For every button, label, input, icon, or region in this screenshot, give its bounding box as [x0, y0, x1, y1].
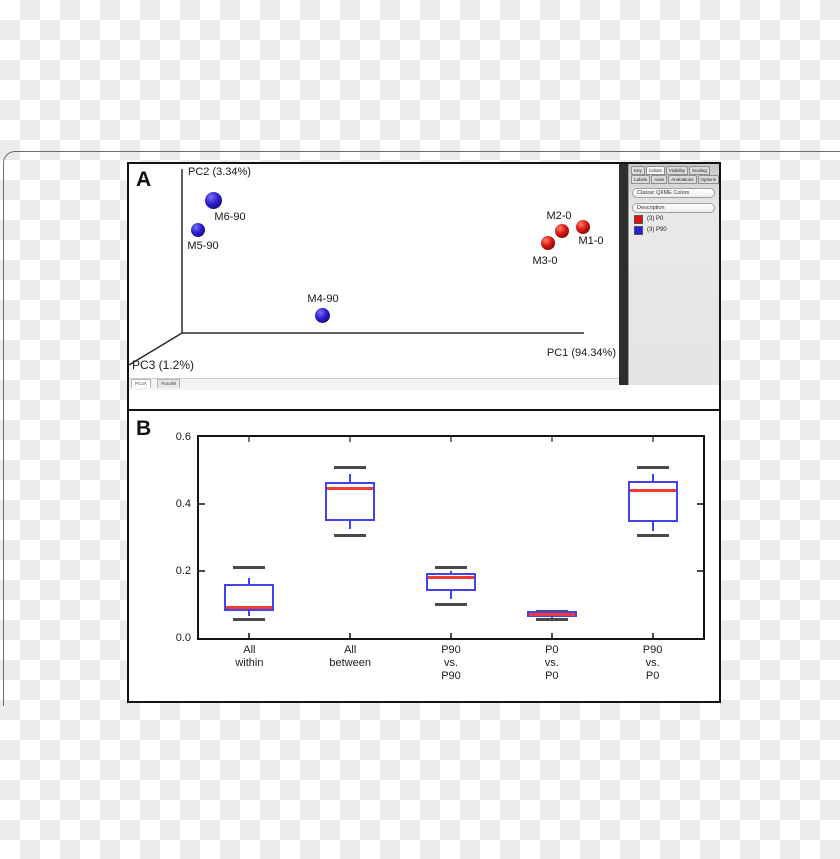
box-cap-high	[233, 566, 265, 569]
emperor-sidebar: KeyColorsVisibilityScaling LabelsAxesAni…	[628, 164, 719, 385]
tab-pcoa[interactable]: PCoA	[131, 379, 151, 388]
pcoa-point-m6-90	[205, 192, 222, 209]
x-tick-mark	[551, 633, 553, 638]
box-whisker-low	[248, 611, 250, 616]
x-tick-mark	[551, 437, 553, 442]
x-tick-mark	[349, 437, 351, 442]
sidebar-tab-axes[interactable]: Axes	[651, 175, 667, 184]
y-tick-label: 0.2	[157, 565, 191, 577]
x-category-label: Allwithin	[204, 644, 294, 670]
sidebar-tab-options[interactable]: Options	[698, 175, 720, 184]
x-category-label: P90vs.P0	[608, 644, 698, 683]
sidebar-tab-labels[interactable]: Labels	[631, 175, 650, 184]
box-cap-low	[435, 603, 467, 606]
figure-container: A PC2 (3.34%) PC1 (94.34%) PC3 (1.2%) M6…	[127, 162, 721, 703]
pcoa-point-m1-0	[576, 220, 590, 234]
box-cap-low	[637, 534, 669, 537]
pcoa-point-label-m5-90: M5-90	[187, 240, 218, 252]
legend-label: (3) P90	[647, 227, 667, 233]
box-median	[226, 606, 272, 609]
y-tick-mark	[199, 503, 205, 505]
x-tick-mark	[248, 437, 250, 442]
box-whisker-high	[349, 474, 351, 482]
panel-b-boxplot: B 0.00.20.40.6 AllwithinAllbetweenP90vs.…	[129, 411, 719, 701]
box-median	[327, 487, 373, 490]
pcoa-point-m3-0	[541, 236, 555, 250]
pcoa-point-label-m6-90: M6-90	[214, 211, 245, 223]
transparency-checkerboard: A PC2 (3.34%) PC1 (94.34%) PC3 (1.2%) M6…	[0, 0, 840, 859]
legend-color-swatch[interactable]	[634, 226, 643, 235]
box-cap-low	[334, 534, 366, 537]
sidebar-tab-animations[interactable]: Animations	[668, 175, 696, 184]
pc3-axis-label: PC3 (1.2%)	[132, 358, 194, 372]
box-whisker-high	[652, 474, 654, 481]
y-tick-label: 0.6	[157, 431, 191, 443]
description-category-button[interactable]: Description	[632, 203, 715, 213]
pcoa-point-label-m2-0: M2-0	[546, 210, 571, 222]
pcoa-point-m4-90	[315, 308, 330, 323]
x-tick-mark	[450, 633, 452, 638]
x-category-label: P0vs.P0	[507, 644, 597, 683]
box-whisker-low	[450, 591, 452, 599]
pc2-axis-label: PC2 (3.34%)	[188, 166, 251, 178]
pc1-axis-label: PC1 (94.34%)	[547, 347, 616, 359]
pcoa-point-m2-0	[555, 224, 569, 238]
box-whisker-high	[248, 578, 250, 585]
x-category-label: P90vs.P90	[406, 644, 496, 683]
sidebar-tab-key[interactable]: Key	[631, 166, 645, 175]
y-tick-mark	[199, 570, 205, 572]
y-tick-label: 0.4	[157, 498, 191, 510]
box-iqr	[628, 481, 678, 523]
box-median	[428, 576, 474, 579]
x-category-label: Allbetween	[305, 644, 395, 670]
legend-row: (3) P90	[634, 226, 714, 236]
x-tick-mark	[652, 437, 654, 442]
box-median	[529, 613, 575, 616]
legend-row: (3) P0	[634, 215, 714, 225]
sidebar-tab-colors[interactable]: Colors	[646, 166, 665, 175]
box-cap-low	[233, 618, 265, 621]
y-tick-mark	[697, 503, 703, 505]
panel-b-letter: B	[136, 417, 151, 441]
sidebar-scrollbar[interactable]	[619, 164, 628, 385]
viewer-tab-strip: PCoA Parallel	[129, 378, 619, 390]
x-tick-mark	[248, 633, 250, 638]
box-median	[630, 489, 676, 492]
panel-a-pcoa-plot[interactable]: A PC2 (3.34%) PC1 (94.34%) PC3 (1.2%) M6…	[129, 164, 719, 409]
box-cap-high	[637, 466, 669, 469]
y-tick-label: 0.0	[157, 632, 191, 644]
classic-qiime-colors-button[interactable]: Classic QIIME Colors	[632, 188, 715, 198]
pcoa-point-m5-90	[191, 223, 205, 237]
legend-label: (3) P0	[647, 216, 663, 222]
box-cap-high	[334, 466, 366, 469]
x-tick-mark	[450, 437, 452, 442]
boxplot-area	[197, 435, 705, 640]
box-whisker-low	[652, 522, 654, 530]
box-cap-low	[536, 618, 568, 621]
x-tick-mark	[349, 633, 351, 638]
pcoa-point-label-m1-0: M1-0	[578, 235, 603, 247]
legend-color-swatch[interactable]	[634, 215, 643, 224]
pcoa-point-label-m4-90: M4-90	[307, 293, 338, 305]
x-tick-mark	[652, 633, 654, 638]
pcoa-point-label-m3-0: M3-0	[532, 255, 557, 267]
tab-parallel[interactable]: Parallel	[157, 379, 180, 388]
y-tick-mark	[697, 570, 703, 572]
box-cap-high	[435, 566, 467, 569]
box-whisker-low	[349, 521, 351, 529]
sidebar-tab-scaling[interactable]: Scaling	[689, 166, 710, 175]
sidebar-tab-visibility[interactable]: Visibility	[666, 166, 688, 175]
